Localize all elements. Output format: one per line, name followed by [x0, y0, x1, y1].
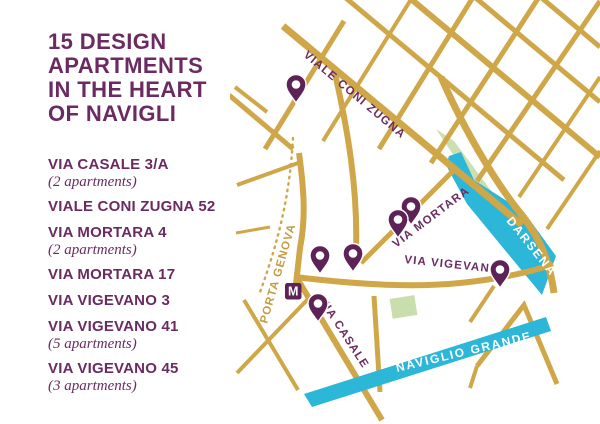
- address-item: VIA VIGEVANO 45(3 apartments): [48, 359, 243, 394]
- map-pin: [310, 246, 330, 275]
- address-name: VIALE CONI ZUGNA 52: [48, 197, 243, 216]
- title-line: OF NAVIGLI: [48, 102, 243, 126]
- map-pin: [343, 244, 363, 273]
- metro-m-label: M: [288, 285, 298, 299]
- map-pin: [308, 294, 328, 323]
- address-note: (2 apartments): [48, 174, 243, 190]
- address-name: VIA VIGEVANO 3: [48, 291, 243, 310]
- water-label-naviglio-grande: NAVIGLIO GRANDE: [394, 329, 533, 375]
- address-name: VIA MORTARA 17: [48, 265, 243, 284]
- address-item: VIA VIGEVANO 41(5 apartments): [48, 317, 243, 352]
- station-label-porta-genova: PORTA GENOVA: [258, 222, 298, 324]
- page-title: 15 DESIGN APARTMENTS IN THE HEART OF NAV…: [48, 30, 243, 126]
- address-note: (5 apartments): [48, 336, 243, 352]
- navigli-map: VIALE CONI ZUGNA VIA MORTARA VIA VIGEVAN…: [230, 0, 600, 424]
- title-line: IN THE HEART: [48, 78, 243, 102]
- park-square: [390, 295, 418, 319]
- map-pin: [286, 75, 306, 104]
- address-item: VIA MORTARA 17: [48, 265, 243, 284]
- address-list: VIA CASALE 3/A(2 apartments)VIALE CONI Z…: [48, 155, 243, 394]
- address-note: (2 apartments): [48, 242, 243, 258]
- address-item: VIALE CONI ZUGNA 52: [48, 197, 243, 216]
- address-name: VIA CASALE 3/A: [48, 155, 243, 174]
- address-item: VIA MORTARA 4(2 apartments): [48, 223, 243, 258]
- navigli-apartments-poster: 15 DESIGN APARTMENTS IN THE HEART OF NAV…: [0, 0, 600, 424]
- street-label-vigevano: VIA VIGEVANO: [404, 254, 501, 276]
- address-name: VIA VIGEVANO 41: [48, 317, 243, 336]
- street-label-coni-zugna: VIALE CONI ZUGNA: [301, 49, 408, 141]
- title-line: APARTMENTS: [48, 54, 243, 78]
- address-name: VIA MORTARA 4: [48, 223, 243, 242]
- map-pin: [490, 260, 510, 289]
- address-item: VIA CASALE 3/A(2 apartments): [48, 155, 243, 190]
- info-panel: 15 DESIGN APARTMENTS IN THE HEART OF NAV…: [48, 30, 243, 401]
- title-line: 15 DESIGN: [48, 30, 243, 54]
- address-note: (3 apartments): [48, 378, 243, 394]
- address-item: VIA VIGEVANO 3: [48, 291, 243, 310]
- address-name: VIA VIGEVANO 45: [48, 359, 243, 378]
- metro-station-marker: M: [285, 283, 302, 300]
